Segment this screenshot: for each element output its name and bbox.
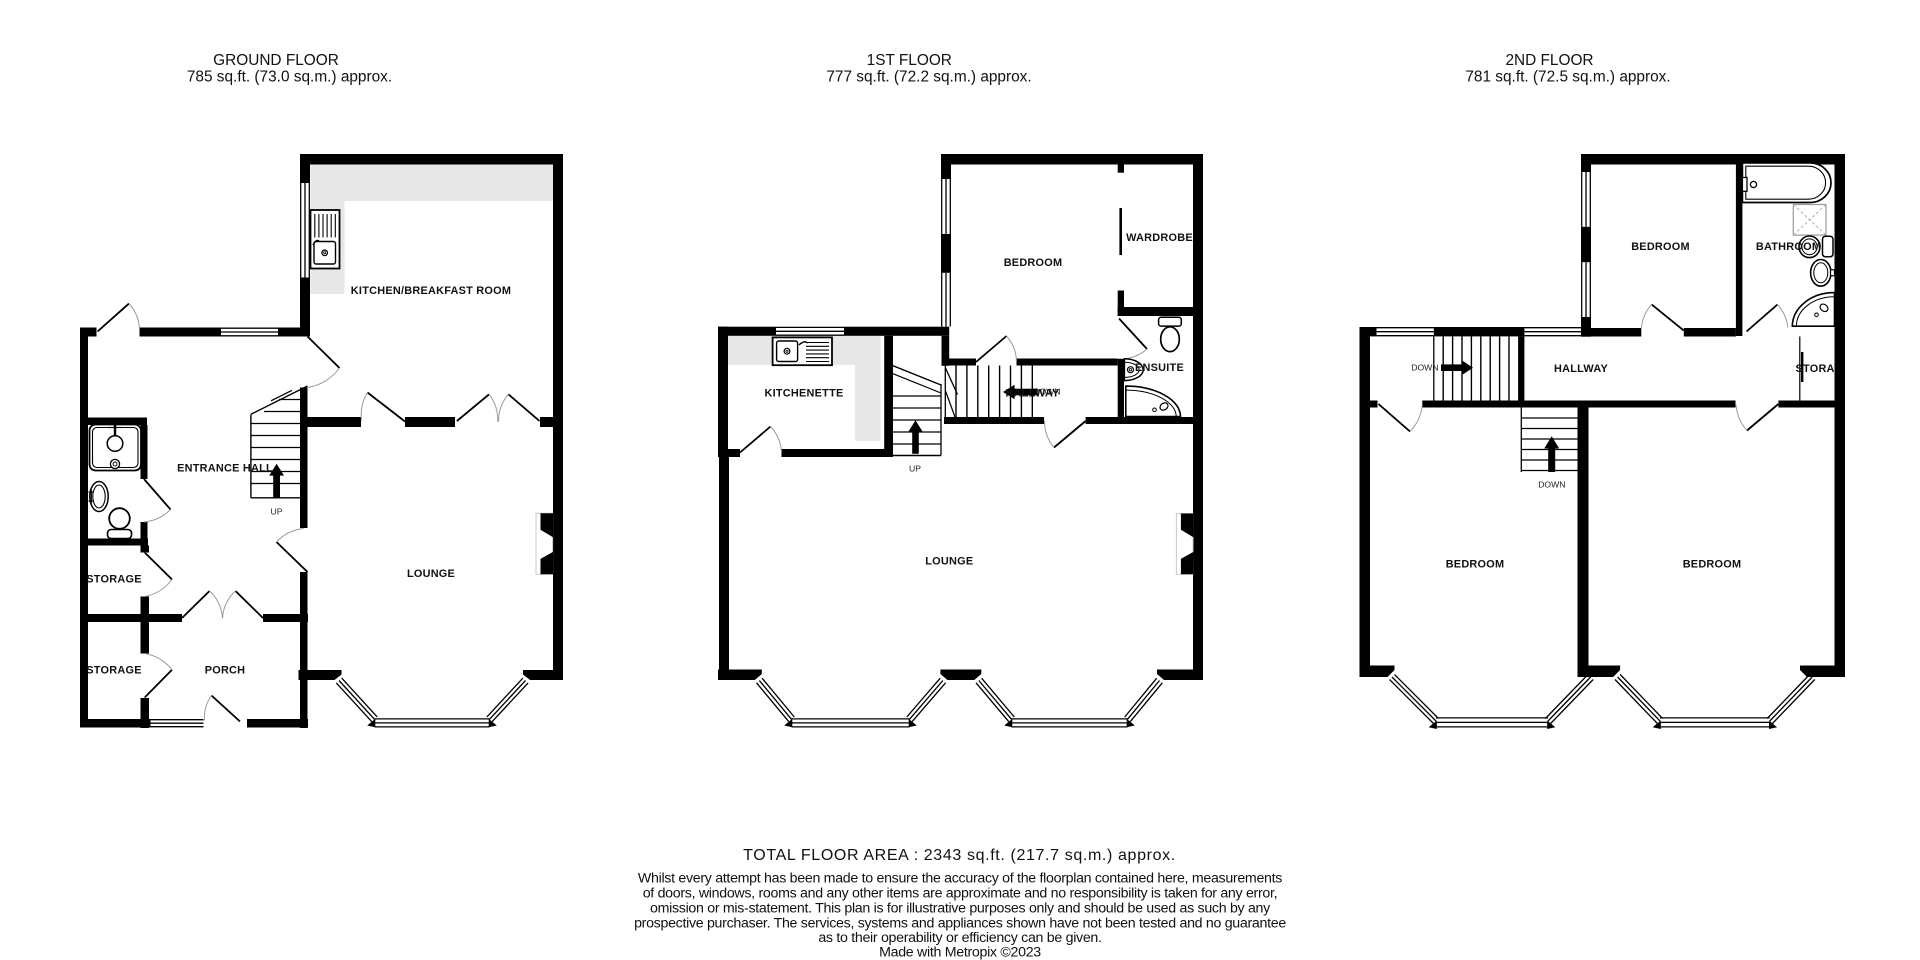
svg-text:2ND FLOOR: 2ND FLOOR [1505, 52, 1593, 69]
svg-text:STORAGE: STORAGE [86, 665, 141, 677]
svg-text:781 sq.ft. (72.5 sq.m.) approx: 781 sq.ft. (72.5 sq.m.) approx. [1465, 68, 1670, 85]
svg-text:785 sq.ft. (73.0 sq.m.) approx: 785 sq.ft. (73.0 sq.m.) approx. [187, 68, 392, 85]
svg-text:BEDROOM: BEDROOM [1631, 241, 1690, 253]
svg-text:LOUNGE: LOUNGE [925, 555, 973, 567]
svg-text:STORAGE: STORAGE [86, 574, 141, 586]
svg-text:PORCH: PORCH [205, 665, 246, 677]
svg-text:KITCHEN/BREAKFAST ROOM: KITCHEN/BREAKFAST ROOM [351, 285, 511, 297]
svg-text:BEDROOM: BEDROOM [1446, 559, 1505, 571]
svg-text:Whilst every attempt has been: Whilst every attempt has been made to en… [638, 870, 1282, 886]
svg-text:UP: UP [271, 506, 283, 516]
svg-text:GROUND FLOOR: GROUND FLOOR [213, 52, 339, 69]
svg-text:omission or mis-statement. Thi: omission or mis-statement. This plan is … [650, 900, 1271, 916]
svg-text:prospective purchaser. The ser: prospective purchaser. The services, sys… [634, 915, 1286, 931]
svg-text:DOWN: DOWN [1411, 363, 1438, 373]
svg-text:BATHROOM: BATHROOM [1756, 241, 1821, 253]
svg-text:BEDROOM: BEDROOM [1683, 559, 1742, 571]
svg-text:ENSUITE: ENSUITE [1135, 362, 1184, 374]
svg-text:TOTAL FLOOR AREA : 2343 sq.ft.: TOTAL FLOOR AREA : 2343 sq.ft. (217.7 sq… [743, 847, 1176, 864]
svg-text:HALLWAY: HALLWAY [1554, 363, 1608, 375]
svg-text:777 sq.ft. (72.2 sq.m.) approx: 777 sq.ft. (72.2 sq.m.) approx. [826, 68, 1031, 85]
svg-text:of doors, windows, rooms and a: of doors, windows, rooms and any other i… [643, 885, 1278, 901]
svg-text:Made with Metropix ©2023: Made with Metropix ©2023 [879, 945, 1041, 960]
svg-text:DOWN: DOWN [1538, 480, 1565, 490]
svg-text:LOUNGE: LOUNGE [407, 568, 455, 580]
svg-text:UP: UP [909, 464, 921, 474]
svg-text:1ST FLOOR: 1ST FLOOR [867, 52, 952, 69]
svg-text:KITCHENETTE: KITCHENETTE [765, 388, 844, 400]
svg-text:WARDROBE: WARDROBE [1126, 232, 1193, 244]
svg-text:BEDROOM: BEDROOM [1004, 257, 1063, 269]
svg-text:ENTRANCE HALL: ENTRANCE HALL [177, 462, 273, 474]
svg-text:HALLWAY: HALLWAY [1006, 388, 1060, 400]
